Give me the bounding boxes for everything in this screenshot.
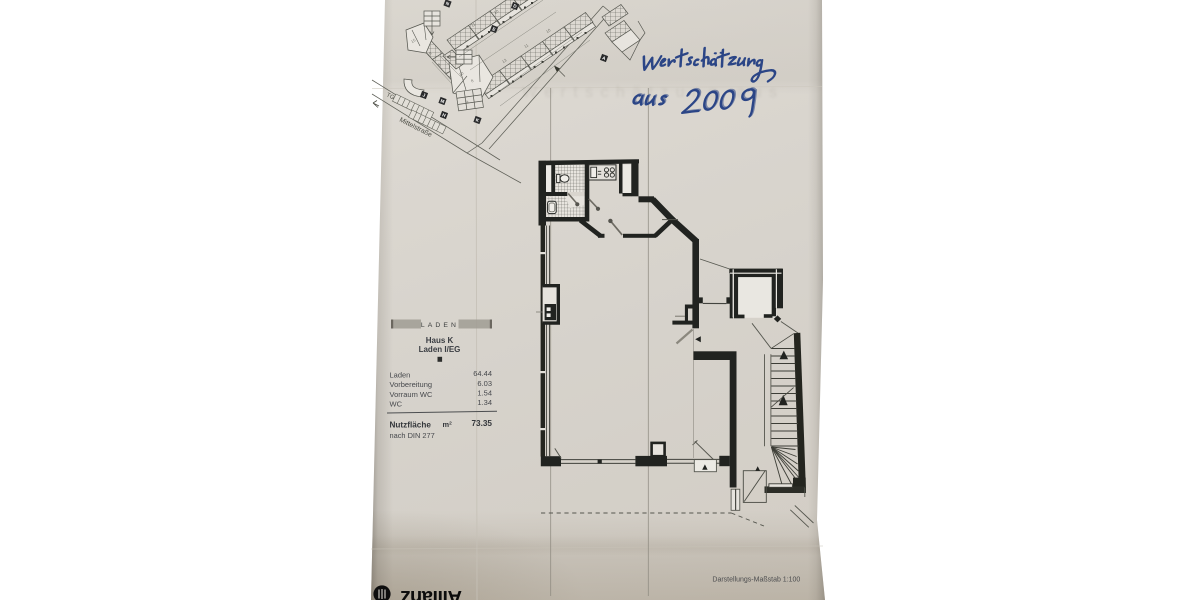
svg-text:WC: WC — [390, 399, 403, 408]
svg-text:m2: m2 — [443, 420, 453, 429]
svg-text:13: 13 — [501, 57, 508, 64]
svg-text:Darstellungs-Maßstab 1:100: Darstellungs-Maßstab 1:100 — [712, 576, 800, 583]
svg-text:Laden I/EG: Laden I/EG — [419, 345, 461, 354]
svg-text:10: 10 — [545, 27, 552, 34]
svg-text:73.35: 73.35 — [472, 419, 493, 428]
svg-text:6.03: 6.03 — [477, 379, 492, 388]
svg-text:1.34: 1.34 — [477, 398, 492, 407]
svg-text:1.54: 1.54 — [477, 389, 492, 398]
svg-text:64.44: 64.44 — [473, 369, 492, 378]
svg-text:11: 11 — [523, 42, 530, 49]
svg-text:Wertschätzung aus: Wertschätzung aus — [522, 84, 777, 101]
svg-text:nach DIN 277: nach DIN 277 — [390, 431, 435, 440]
svg-text:Haus K: Haus K — [426, 336, 454, 345]
svg-text:Nutzfläche: Nutzfläche — [390, 421, 432, 430]
svg-text:LADEN: LADEN — [421, 322, 459, 329]
svg-text:Laden: Laden — [390, 371, 411, 380]
svg-text:Allianz: Allianz — [401, 586, 462, 600]
svg-text:Vorbereitung: Vorbereitung — [390, 380, 433, 389]
svg-text:Vorraum WC: Vorraum WC — [390, 390, 434, 399]
